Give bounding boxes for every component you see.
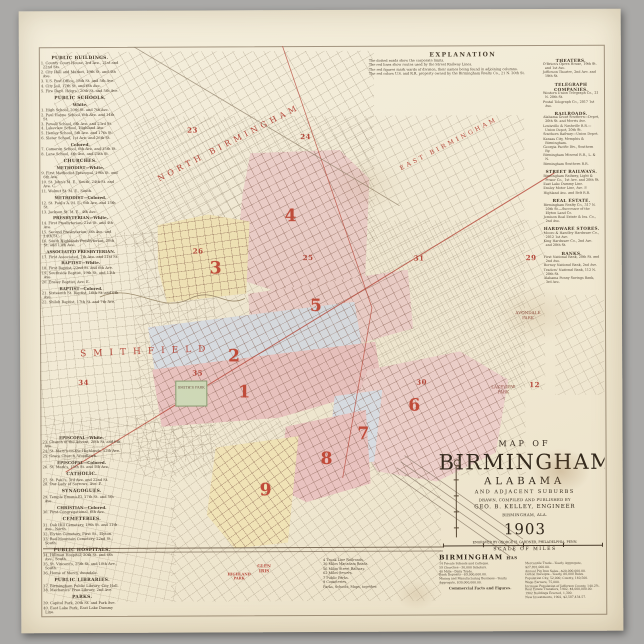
index-entry: METHODIST—Colored. [41, 195, 119, 200]
index-entry: 27. St. Paul's, 3rd Ave. and 22nd St. [43, 478, 121, 483]
index-entry: EPISCOPAL—White. [42, 434, 120, 439]
map-canvas: NORTH BIRMINGHAM EAST BIRMINGHAM SMITHFI… [39, 45, 605, 615]
index-entry: 9. First Methodist Episcopal, 19th St. a… [41, 171, 119, 180]
index-entry: Colored. [41, 142, 119, 147]
stats-right-column: Mercantile Trade—Yearly Aggregate, $27,8… [525, 562, 605, 600]
label-highland-park: HIGHLAND PARK [225, 572, 253, 580]
index-entry: 8. Lane School, 4th Ave. and 24th St. [41, 152, 119, 157]
ward-number: 24 [300, 132, 311, 141]
index-entry: 22. Shiloh Baptist, 17th St. and 7th Ave… [42, 300, 120, 305]
ward-number: 30 [416, 378, 427, 387]
district-number: 1 [238, 382, 250, 402]
index-entry: 10. St. John's M. E., South, 24th St. an… [41, 180, 119, 189]
index-entry: 21. Sixteenth St. Baptist, 16th St. and … [42, 291, 120, 300]
index-entry: 16. South Highlands Presbyterian, 20th S… [42, 239, 120, 248]
index-entry: PARKS. [43, 595, 121, 600]
index-entry: 25. Grace Church, Woodlawn. [43, 454, 121, 459]
stats-left-column: 14 Private Schools and Colleges.59 Churc… [439, 562, 521, 600]
index-entry: ASSOCIATED PRESBYTERIAN. [42, 249, 120, 254]
map-poster: NORTH BIRMINGHAM EAST BIRMINGHAM SMITHFI… [19, 9, 624, 634]
ward-number: 23 [187, 126, 198, 135]
index-entry: 5. Fire Dept. Hdqrs., 20th St. and 5th A… [41, 89, 119, 94]
index-entry: 2. Paul Hayne School, 6th Ave. and 14th … [41, 112, 119, 121]
explanation-block: EXPLANATION The dotted roads show the co… [369, 51, 557, 76]
index-entry: Highland Ave. and Belt R.R. [543, 192, 599, 196]
title-city: BIRMINGHAM [439, 450, 606, 475]
district-number: 8 [321, 449, 333, 469]
title-map-of: MAP OF [439, 439, 606, 449]
stats-heading-main: BIRMINGHAM [439, 553, 503, 561]
district-number: 9 [260, 480, 272, 500]
index-column-left-bottom: EPISCOPAL—White.23. Church of the Advent… [42, 433, 121, 615]
index-entry: King Hardware Co., 2nd Ave. and 20th St. [544, 240, 600, 248]
index-entry: Jefferson Theatre, 2nd Ave. and 19th St. [543, 71, 599, 79]
index-entry: White. [41, 102, 119, 107]
label-avondale-park: AVONDALE PARK [512, 311, 544, 321]
index-entry: PUBLIC LIBRARIES. [43, 578, 121, 583]
index-entry: 17. First Associated, 7th Ave. and 21st … [42, 254, 120, 259]
index-entry: 38. Mechanics' Free Library, 2nd Ave. [43, 588, 121, 593]
title-block: MAP OF BIRMINGHAM ALABAMA AND ADJACENT S… [439, 439, 606, 552]
elevation-ruler [452, 459, 460, 539]
ward-number: 29 [526, 253, 537, 262]
index-entry: 40. East Lake Park, East Lake Dummy Line… [43, 605, 121, 614]
index-entry: CATHOLIC. [43, 472, 121, 477]
explanation-line: The red colors U.S. and R.R. property ow… [369, 71, 557, 76]
index-column-right: THEATERS.O'Brien's Opera House, 19th St.… [543, 55, 600, 286]
index-entry: 20. Ensley Baptist, Ave. E. [42, 280, 120, 285]
label-smiths-park: SMITH'S PARK [175, 380, 207, 406]
title-author: GEO. B. KELLEY, ENGINEER [439, 503, 605, 510]
index-entry: 34. Hillman Hospital, 20th St. and 6th A… [43, 553, 121, 562]
index-entry: PRESBYTERIAN—White. [42, 215, 120, 220]
index-entry: Birmingham Southern R.R. [543, 162, 599, 166]
index-entry: PUBLIC BUILDINGS. [41, 55, 119, 60]
stats-block: BIRMINGHAM HAS 14 Private Schools and Co… [439, 553, 605, 600]
index-entry: 31. Oak Hill Cemetery, 19th St. and 11th… [43, 523, 121, 532]
district-number: 7 [357, 424, 369, 444]
index-entry: 32. Elyton Cemetery, First St., Elyton. [43, 532, 121, 537]
district-number: 3 [210, 258, 222, 278]
index-entry: 6. Slater School, 1st Ave. and 26th St. [41, 136, 119, 141]
index-entry: 24. St. Mary's-on-the-Highlands, 12th Av… [43, 449, 121, 454]
index-entry: 30. First Congregational, 6th Ave. [43, 510, 121, 515]
district-number: 5 [310, 296, 322, 316]
index-entry: Postal Telegraph Co., 2017 1st Ave. [543, 100, 599, 108]
index-entry: 1. County Court House, 3rd Ave., 21st an… [41, 61, 119, 70]
index-entry: 14. First Presbyterian, 21st St. and 4th… [42, 221, 120, 230]
index-entry: 19. Southside Baptist, 19th St. and 11th… [42, 271, 120, 280]
index-entry: 12. St. Paul's A. M. E., 6th Ave. and 15… [41, 200, 119, 209]
ward-number: 12 [529, 380, 540, 389]
district-number: 2 [228, 346, 240, 366]
index-entry: 2. City Hall and Market, 19th St. and 4t… [41, 70, 119, 79]
index-entry: Birmingham Mineral R.R., L. & N. [543, 154, 599, 162]
index-entry: PUBLIC SCHOOLS. [41, 95, 119, 100]
index-entry: 26. St. Mark's, 15th St. and 5th Ave. [43, 465, 121, 470]
index-entry: 18. First Baptist, 22nd St. and 6th Ave. [42, 266, 120, 271]
index-entry: METHODIST—White. [41, 165, 119, 170]
index-entry: 13. Jackson St. M. E., 4th Ave. [42, 209, 120, 214]
city-facts-index: 4 Trunk Line Railroads.30 Miles Macadam … [323, 558, 433, 589]
ward-number: 25 [303, 253, 314, 262]
title-state: ALABAMA [439, 476, 606, 488]
title-drawn-by: DRAWN, COMPILED AND PUBLISHED BY [439, 497, 606, 503]
index-entry: CEMETERIES. [43, 517, 121, 522]
district-number: 4 [284, 206, 296, 226]
label-glen-iris: GLEN IRIS [255, 564, 273, 574]
index-column-left-top: PUBLIC BUILDINGS.1. County Court House, … [41, 53, 120, 305]
index-entry: CHRISTIAN—Colored. [43, 505, 121, 510]
stats-subhead: Commercial Facts and Figures. [439, 586, 521, 590]
facts-line: Parks, Schools, Maps, together. [323, 584, 433, 589]
index-entry: 23. Church of the Advent, 20th St. and 6… [43, 440, 121, 449]
index-entry: 28. Our Lady of Sorrows, Ave. F. [43, 482, 121, 487]
index-entry: BAPTIST—White. [42, 260, 120, 265]
title-suburbs: AND ADJACENT SUBURBS [439, 489, 606, 496]
title-year: 1903 [439, 519, 605, 538]
index-entry: BAPTIST—Colored. [42, 285, 120, 290]
index-entry: 11. Walnut St. M. E., South. [41, 189, 119, 194]
scale-bar [443, 545, 603, 553]
index-entry: 33. Red Mountain Cemetery, 22nd St., Sou… [43, 536, 121, 545]
district-number: 6 [408, 396, 420, 416]
ward-number: 26 [193, 247, 204, 256]
stats-line: Mining and Manufacturing Business—Yearly… [439, 577, 521, 585]
index-entry: 3. Powell School, 6th Ave. and 23rd St. [41, 121, 119, 126]
title-place: BIRMINGHAM, ALA. [439, 511, 605, 517]
index-entry: 36. Home of Mercy, Avondale. [43, 571, 121, 576]
index-entry: 35. St. Vincent's, 25th St. and 10th Ave… [43, 562, 121, 571]
index-entry: EPISCOPAL—Colored. [43, 460, 121, 465]
index-entry: 39. Capitol Park, 20th St. and Park Ave. [43, 601, 121, 606]
stats-line: New Investments, 1902, $2,587,434.57. [525, 596, 605, 600]
index-entry: 29. Temple Emanu-El, 17th St. and 5th Av… [43, 495, 121, 504]
index-entry: SYNAGOGUES. [43, 489, 121, 494]
ward-number: 31 [414, 254, 425, 263]
index-entry: Alabama Penny Savings Bank, 3rd Ave. [544, 277, 600, 285]
ward-number: 35 [192, 369, 203, 378]
index-entry: CHURCHES. [41, 159, 119, 164]
stats-heading-suffix: HAS [506, 555, 517, 560]
ward-number: 34 [78, 378, 89, 387]
index-entry: 1. High School, 20th St. and 7th Ave. [41, 108, 119, 113]
index-entry: 15. Second Presbyterian, 6th Ave. and 14… [42, 230, 120, 239]
index-entry: Jemison Real Estate & Ins. Co., 2nd Ave. [544, 216, 600, 224]
label-lakeview-park: LAKEVIEW PARK [488, 385, 518, 395]
index-entry: Birmingham Realty Co., 317 N. 20th St.—S… [543, 204, 599, 216]
